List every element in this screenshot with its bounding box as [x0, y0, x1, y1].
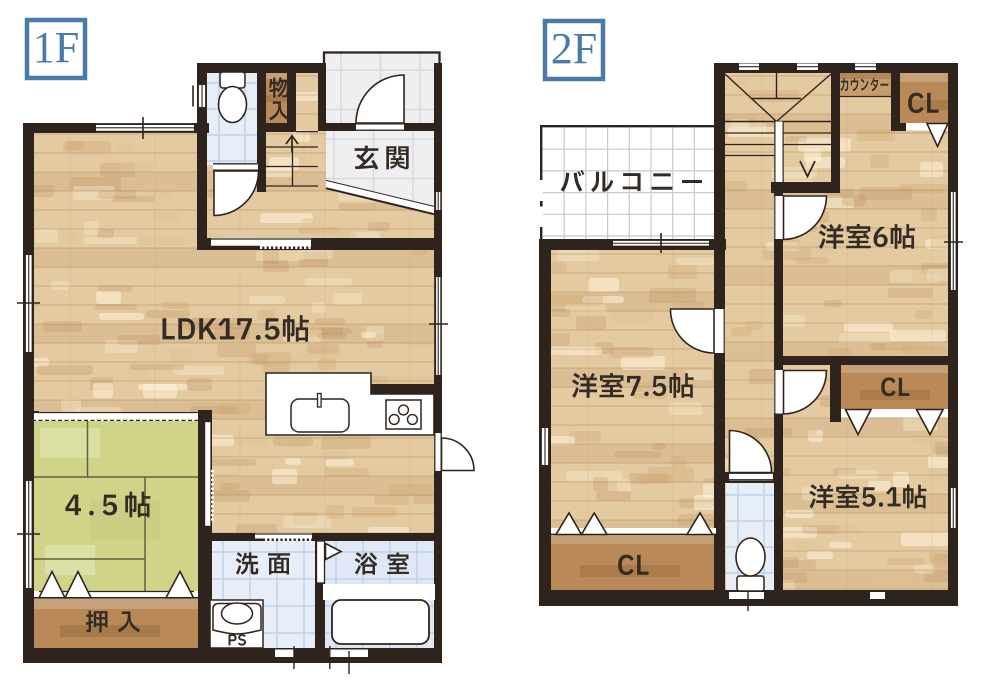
svg-text:1F: 1F [33, 23, 79, 72]
svg-text:2F: 2F [551, 24, 597, 73]
